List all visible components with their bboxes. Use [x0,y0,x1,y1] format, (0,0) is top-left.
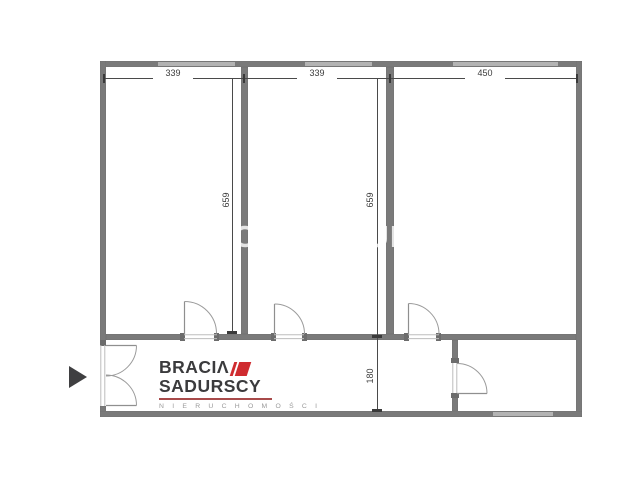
logo-subtitle: N I E R U C H O M O Ś C I [159,403,320,410]
dim-label-room-depth-2: 659 [364,180,376,220]
dim-tick [103,74,105,83]
dim-line-vertical-1 [232,78,233,334]
logo-brand-bottom: SADURSCY [159,377,320,396]
door-swing-arc [409,304,440,335]
door-swing-arc [106,375,137,406]
door-frame [408,335,439,339]
logo-roof-slit [233,362,240,376]
dim-tick [389,74,391,83]
dim-tick [576,74,578,83]
door-swing-arc [275,304,305,334]
door-frame [101,345,105,406]
logo-brand-top: BRACIΛ [159,358,229,377]
door-bottom-right-room [453,363,487,394]
door-room1 [184,302,217,339]
entrance-double-door [101,345,137,406]
dim-tick [227,331,237,334]
dim-tick [243,74,245,83]
dim-label-room-depth-1: 659 [220,180,232,220]
entrance-arrow-icon [69,366,87,388]
door-swing-arc [106,346,137,377]
door-swing-arc [457,364,487,394]
logo-roof-icon [230,362,252,376]
door-frame [274,335,304,339]
door-frame [184,335,217,339]
dim-label-room3-width: 450 [465,67,505,79]
dim-label-corridor-depth: 180 [364,356,376,396]
logo-divider [159,398,272,400]
brand-logo: BRACIΛ SADURSCY N I E R U C H O M O Ś C … [159,358,320,410]
watermark: BRACIA SADURSCY [163,219,480,255]
dim-tick [372,335,382,338]
door-swing-arc [185,302,217,334]
dim-label-room2-width: 339 [297,67,337,79]
floor-plan: 339 339 450 659 659 180 BRACIΛ SADURSCY … [0,0,640,480]
dim-label-room1-width: 339 [153,67,193,79]
door-frame [453,363,457,393]
dim-tick [372,409,382,412]
door-room3 [408,304,439,339]
door-room2 [274,304,305,339]
